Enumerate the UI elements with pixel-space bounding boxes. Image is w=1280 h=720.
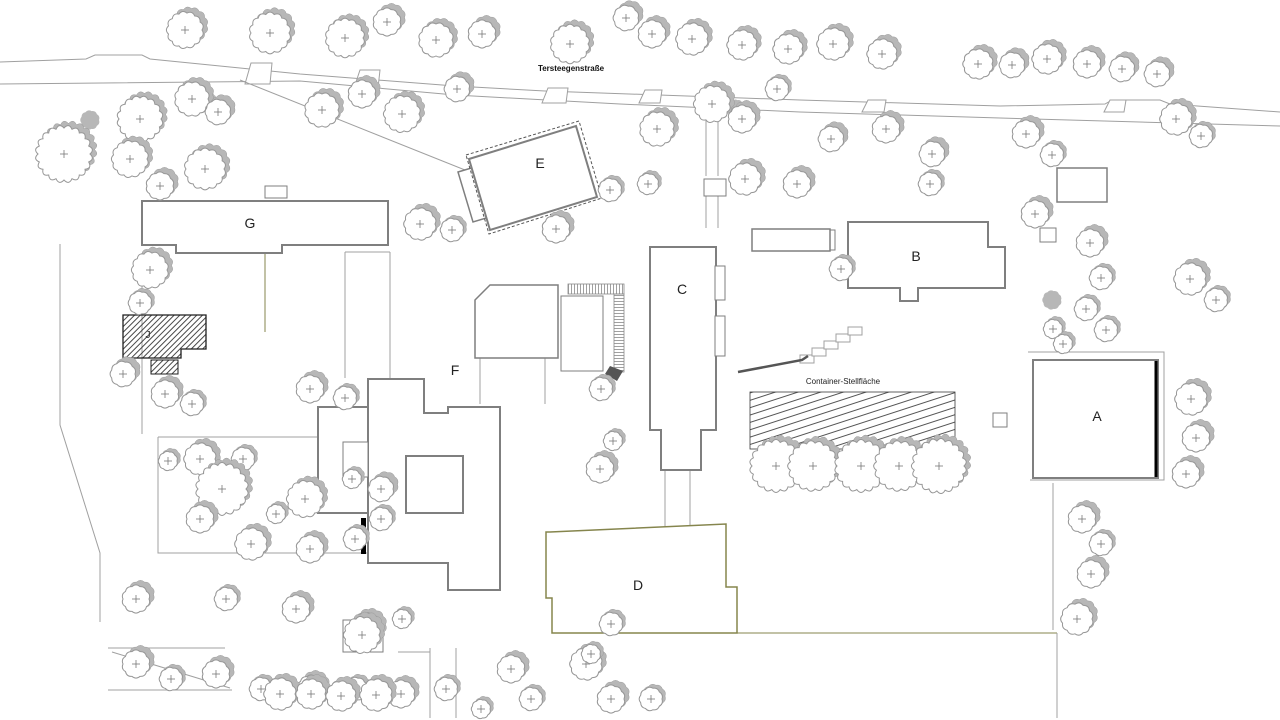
building-J-annex-hatched (151, 360, 178, 374)
building-J-hatched (123, 315, 206, 358)
driveway (639, 90, 662, 103)
buildings-layer (142, 121, 1158, 652)
building-label-E: E (535, 155, 544, 171)
bush (1042, 290, 1061, 309)
building-label-D: D (633, 577, 643, 593)
building-label-B: B (911, 248, 920, 264)
site-plan: ABCDEFGJTersteegenstraßeContainer-Stellf… (0, 0, 1280, 720)
ramp-band-horizontal (568, 284, 624, 294)
driveway (245, 63, 272, 84)
container-area-label: Container-Stellfläche (806, 377, 881, 386)
structure (993, 413, 1007, 427)
ramp-band-vertical (614, 294, 624, 372)
driveway (1104, 100, 1126, 112)
building-label-G: G (245, 215, 256, 231)
building-E (469, 126, 597, 230)
structure (265, 186, 287, 198)
site-path (60, 244, 100, 622)
driveway (542, 88, 568, 103)
building-label-C: C (677, 281, 687, 297)
building-conservatory (475, 285, 558, 358)
stair-step (848, 327, 862, 335)
structure (406, 456, 463, 513)
stair-railing (738, 356, 808, 372)
structure (715, 316, 725, 356)
structure (561, 296, 603, 371)
site-plan-drawing: ABCDEFGJTersteegenstraßeContainer-Stellf… (0, 0, 1280, 720)
structure (704, 179, 726, 196)
structure (1040, 228, 1056, 242)
street-name-label: Tersteegenstraße (538, 64, 605, 73)
structure (752, 229, 830, 251)
building-label-A: A (1092, 408, 1102, 424)
structure (715, 266, 725, 300)
building-G (142, 201, 388, 253)
steps-layer (738, 327, 862, 372)
building-label-F: F (451, 362, 460, 378)
building-label-J: J (146, 330, 151, 341)
structure (1057, 168, 1107, 202)
building-B (848, 222, 1005, 301)
